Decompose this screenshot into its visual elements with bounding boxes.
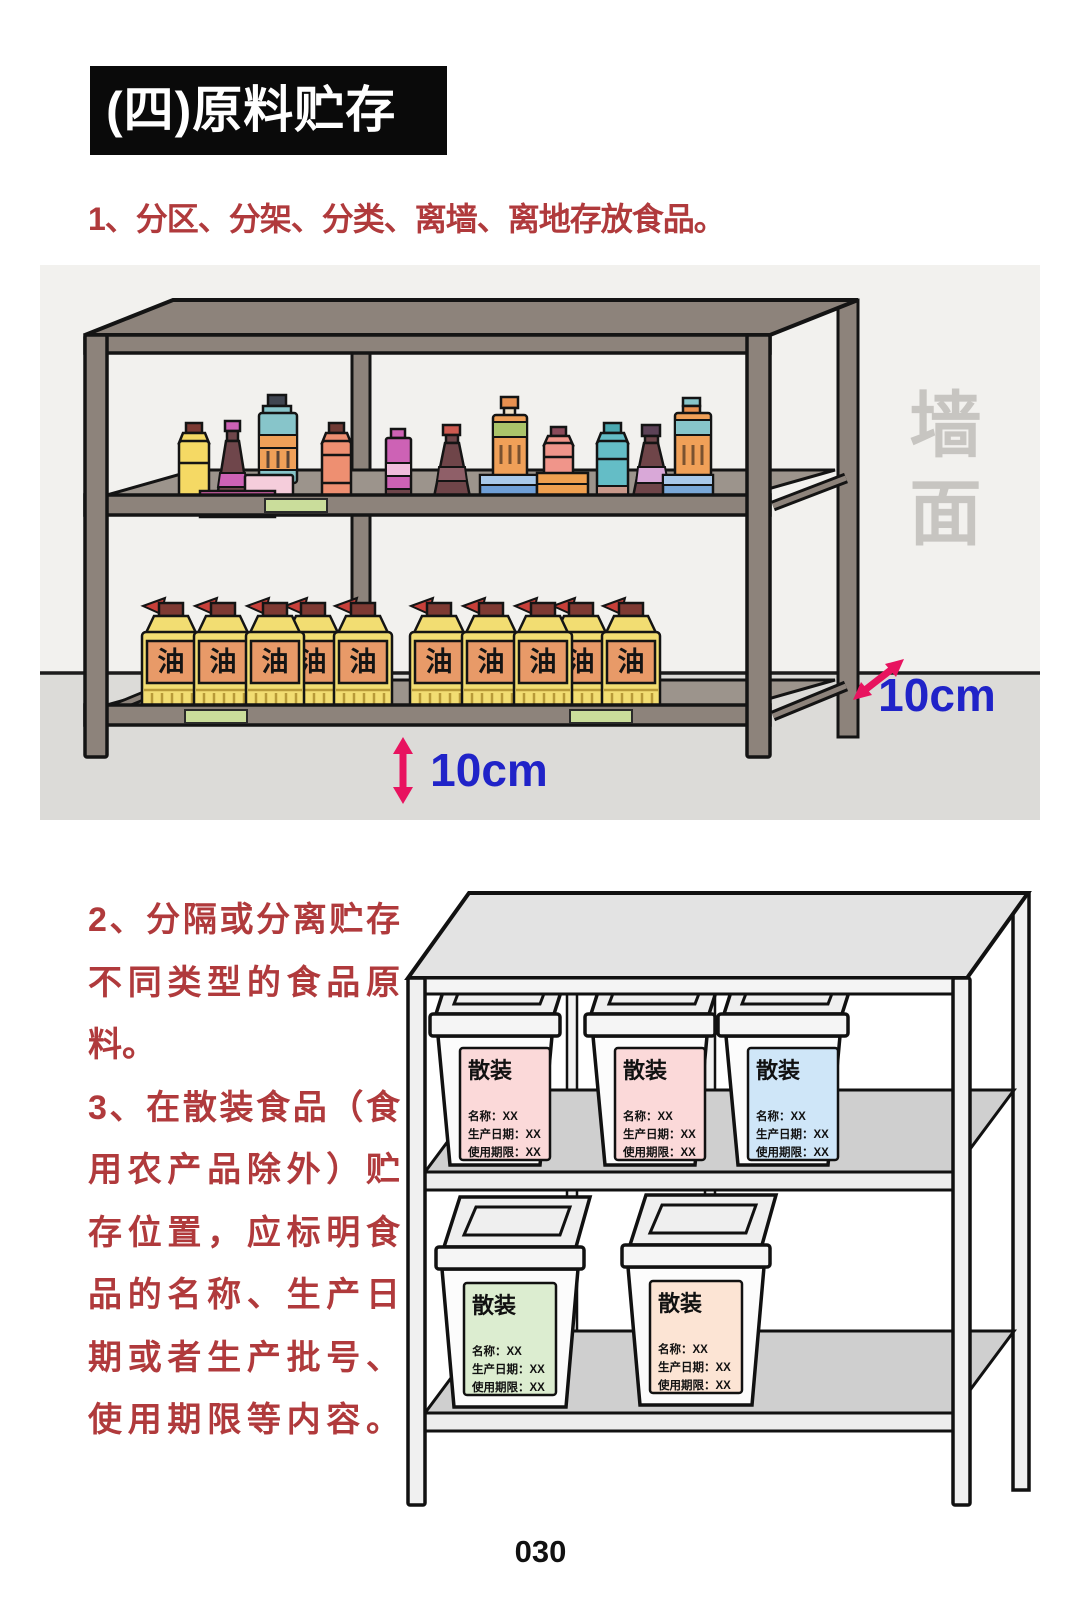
note-line: 2、分隔或分离贮存 [88,889,400,952]
bin-tag: 散装 [658,1291,702,1316]
bottle-salmon [322,423,351,497]
bin-expiry-line: 使用期限：XX [755,1145,829,1159]
bottle-magenta [386,429,411,497]
note-line: 料。 [88,1014,400,1077]
rule-1-text: 1、分区、分架、分类、离墙、离地存放食品。 [88,194,788,240]
bin-date-line: 生产日期：XX [756,1127,829,1141]
oil-label: 油 [478,647,505,677]
bin-tag: 散装 [468,1058,512,1083]
bottle-yellow [179,423,209,497]
page: (四)原料贮存 1、分区、分架、分类、离墙、离地存放食品。 墙面 [0,0,1081,1600]
shelf-sticker [185,710,247,723]
page-title: (四)原料贮存 [90,66,447,155]
note-line: 使用期限等内容。 [88,1389,400,1452]
page-number: 030 [0,1534,1081,1570]
rack-bottom-fascia [408,1413,967,1431]
bin-label: 散装 名称：XX 生产日期：XX 使用期限：XX [748,1048,838,1160]
shelf-clearance-illustration: 墙面 [40,265,1040,820]
shelf-front-right-leg [747,335,770,757]
rack-front-right-leg [953,978,970,1505]
title-banner: (四)原料贮存 [90,66,447,155]
bin-date-line: 生产日期：XX [472,1362,545,1376]
wall-label: 墙面 [898,387,980,563]
bin-name-line: 名称：XX [468,1109,518,1123]
bulk-bins-illustration: 散装 名称：XX 生产日期：XX 使用期限：XX 散装 名称：XX 生产日期：X… [400,862,1055,1512]
shelf-front-left-leg [85,335,107,757]
note-line: 期或者生产批号、 [88,1327,400,1390]
oil-label: 油 [618,647,645,677]
shelf-top-fascia [85,335,770,353]
rack-top-face [408,893,1028,978]
bin-date-line: 生产日期：XX [658,1360,731,1374]
shelf-sticker [265,499,327,512]
bin-name-line: 名称：XX [623,1109,673,1123]
bulk-bins-svg: 散装 名称：XX 生产日期：XX 使用期限：XX 散装 名称：XX 生产日期：X… [400,862,1055,1512]
bottle-teal-plain [597,423,628,497]
oil-label: 油 [426,647,453,677]
oil-label: 油 [530,647,557,677]
bin-name-line: 名称：XX [472,1344,522,1358]
note-line: 存位置，应标明食 [88,1202,400,1265]
shelf-sticker [570,710,632,723]
note-line: 用农产品除外）贮 [88,1139,400,1202]
rules-text-column: 2、分隔或分离贮存 不同类型的食品原 料。 3、在散装食品（食 用农产品除外）贮… [88,889,400,1452]
oil-label: 油 [210,647,237,677]
oil-label: 油 [350,647,377,677]
bin-label: 散装 名称：XX 生产日期：XX 使用期限：XX [464,1283,556,1395]
shelf-back-leg [838,300,858,737]
shelf-top-face [85,300,858,335]
bin-expiry-line: 使用期限：XX [657,1378,731,1392]
bottle-teal-striped [259,395,297,483]
oil-label: 油 [158,647,185,677]
bin-expiry-line: 使用期限：XX [471,1380,545,1394]
bin-label: 散装 名称：XX 生产日期：XX 使用期限：XX [650,1281,742,1393]
note-line: 不同类型的食品原 [88,952,400,1015]
rack-back-leg [1013,893,1029,1490]
bin-date-line: 生产日期：XX [468,1127,541,1141]
bin-expiry-line: 使用期限：XX [467,1145,541,1159]
wall-gap-text: 10cm [878,669,996,721]
bin-tag: 散装 [756,1058,800,1083]
bin-label: 散装 名称：XX 生产日期：XX 使用期限：XX [460,1048,550,1160]
bin-expiry-line: 使用期限：XX [622,1145,696,1159]
bin-tag: 散装 [623,1058,667,1083]
bin-tag: 散装 [472,1293,516,1318]
rack-top-fascia [408,978,967,994]
bin-label: 散装 名称：XX 生产日期：XX 使用期限：XX [615,1048,705,1160]
shelf-clearance-svg: 墙面 [40,265,1040,820]
note-line: 3、在散装食品（食 [88,1077,400,1140]
note-line: 品的名称、生产日 [88,1264,400,1327]
bin-name-line: 名称：XX [658,1342,708,1356]
floor-gap-text: 10cm [430,744,548,796]
bin-name-line: 名称：XX [756,1109,806,1123]
rack-front-left-leg [408,978,425,1505]
bin-date-line: 生产日期：XX [623,1127,696,1141]
oil-label: 油 [262,647,289,677]
middle-shelf-rail [85,495,770,515]
rack-middle-fascia [408,1172,967,1190]
